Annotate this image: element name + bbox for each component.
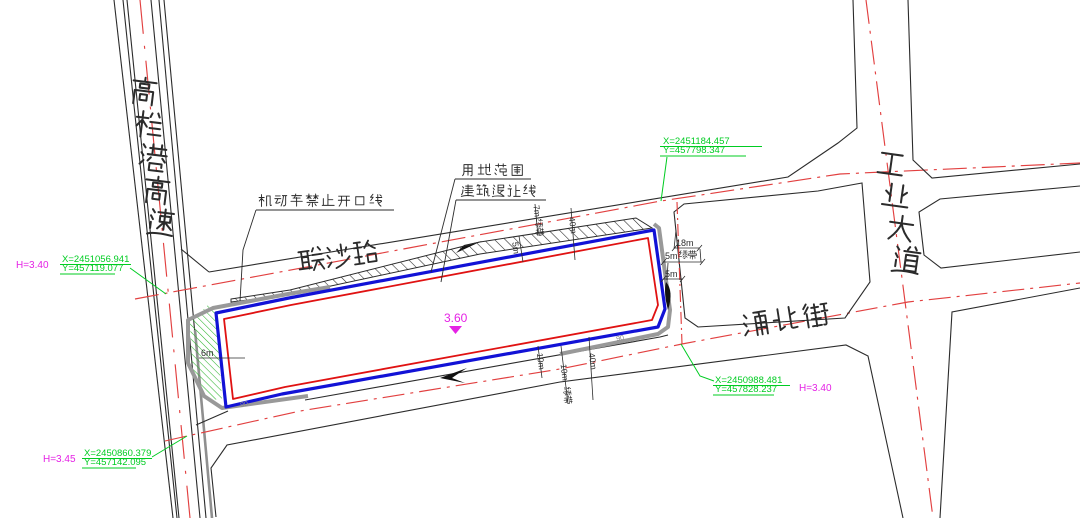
svg-text:40m: 40m xyxy=(587,352,599,370)
svg-text:Y=457798.347: Y=457798.347 xyxy=(663,145,725,156)
svg-text:6m: 6m xyxy=(201,348,214,358)
svg-text:H=3.40: H=3.40 xyxy=(799,383,832,394)
svg-text:10m: 10m xyxy=(559,364,571,382)
svg-text:90: 90 xyxy=(616,335,625,343)
svg-text:5m: 5m xyxy=(665,251,678,261)
svg-text:18m: 18m xyxy=(676,238,694,248)
svg-text:40m: 40m xyxy=(567,216,579,234)
svg-text:Y=457828.237: Y=457828.237 xyxy=(715,384,777,395)
svg-text:90: 90 xyxy=(240,401,249,409)
svg-text:3.60: 3.60 xyxy=(444,311,468,325)
svg-text:H=3.45: H=3.45 xyxy=(43,454,76,465)
svg-text:H=3.40: H=3.40 xyxy=(16,260,49,271)
svg-text:5m: 5m xyxy=(510,241,521,254)
svg-text:Y=457119.077: Y=457119.077 xyxy=(62,263,123,274)
svg-text:7m: 7m xyxy=(531,204,542,217)
svg-text:Y=457142.095: Y=457142.095 xyxy=(84,457,146,468)
svg-text:10m: 10m xyxy=(535,352,547,370)
